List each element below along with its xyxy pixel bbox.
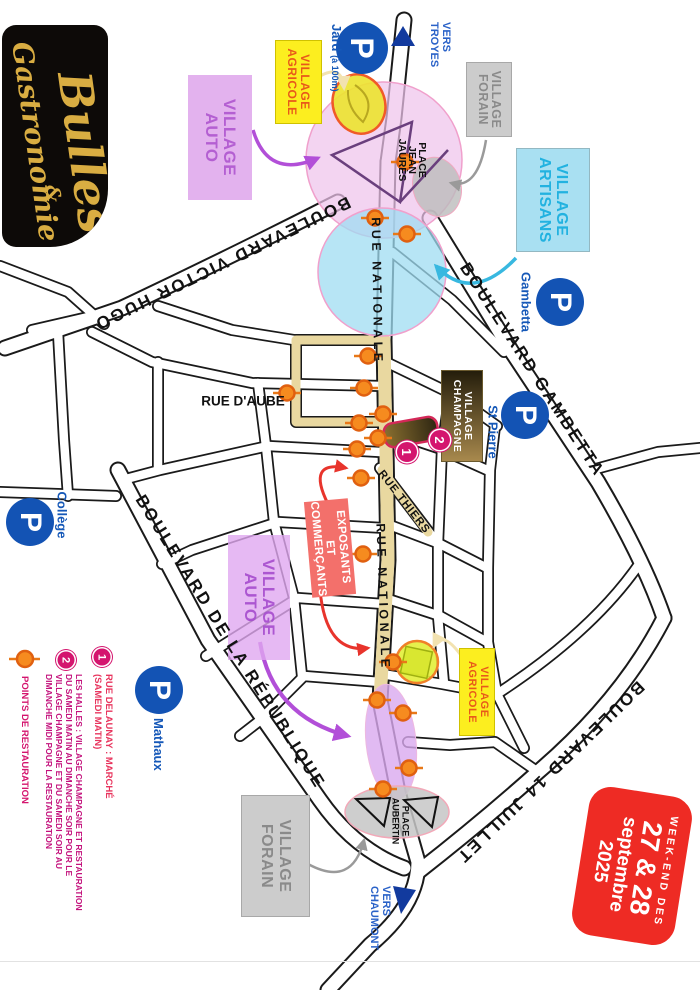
village-forain-box-north: VILLAGE FORAIN	[466, 62, 512, 137]
vers-chaumont-label: VERS CHAUMONT	[368, 886, 392, 950]
village-auto-word1: VILLAGE	[220, 99, 238, 176]
legend-item2: LES HALLES : VILLAGE CHAMPAGNE ET RESTAU…	[44, 674, 84, 911]
restauration-point-icon	[347, 471, 375, 486]
parking-mathaux-icon: P	[135, 666, 183, 714]
place-aubertin-label: PLACE AUBERTIN	[391, 798, 410, 845]
village-auto-box-north: VILLAGE AUTO	[188, 75, 252, 200]
village-agricole-box-south: VILLAGE AGRICOLE	[459, 648, 495, 736]
village-forain-word2: FORAIN	[258, 824, 275, 888]
village-agricole-word2: AGRICOLE	[286, 48, 299, 115]
village-forain-box-south: VILLAGE FORAIN	[241, 795, 310, 917]
marker-1-rue-delaunay: 1	[397, 442, 417, 462]
event-map-poster: Bulles & Gastronomie VILLAGE AUTO VILLAG…	[0, 0, 700, 990]
parking-college-icon: P	[6, 498, 54, 546]
village-champagne-word1: VILLAGE	[462, 391, 473, 440]
village-auto-word2: AUTO	[202, 113, 220, 163]
rue-daube-label: RUE D'AUBE	[201, 394, 284, 409]
marker-2-les-halles: 2	[430, 430, 450, 450]
village-artisans-box: VILLAGE ARTISANS	[516, 148, 590, 252]
map-stage: Bulles & Gastronomie VILLAGE AUTO VILLAG…	[0, 0, 700, 990]
village-forain-word2: FORAIN	[476, 74, 490, 125]
village-forain-word1: VILLAGE	[489, 71, 503, 129]
event-logo: Bulles & Gastronomie	[2, 25, 108, 247]
village-agricole-word2: AGRICOLE	[465, 661, 477, 723]
village-agricole-box-north: VILLAGE AGRICOLE	[275, 40, 322, 124]
parking-st-pierre-icon: P	[501, 391, 549, 439]
village-artisans-word2: ARTISANS	[536, 157, 553, 243]
parking-st-pierre-label: St Pierre	[486, 405, 501, 458]
restauration-point-icon	[349, 547, 377, 562]
parking-gambetta-label: Gambetta	[519, 272, 534, 332]
legend-marker-1-icon: 1	[94, 649, 111, 666]
parking-gambetta-icon: P	[536, 278, 584, 326]
village-champagne-box: VILLAGE CHAMPAGNE	[441, 370, 483, 462]
parking-college-label: Collège	[55, 492, 70, 539]
village-agricole-word1: VILLAGE	[477, 666, 489, 717]
legend-item1: RUE DELAUNAY : MARCHÉ (SAMEDI MATIN)	[92, 674, 114, 799]
village-forain-word1: VILLAGE	[276, 820, 293, 893]
parking-jard-label: Jard (à 100m)	[329, 24, 344, 92]
poster-edge-line	[0, 961, 700, 962]
vers-troyes-label: VERS TROYES	[428, 22, 452, 67]
place-jean-jaures-label: PLACE JEAN JAURÈS	[397, 139, 427, 182]
village-auto-word1: VILLAGE	[259, 559, 277, 636]
village-agricole-word1: VILLAGE	[299, 54, 312, 110]
exposants-box: EXPOSANTS ET COMMERÇANTS	[304, 498, 356, 597]
village-champagne-word2: CHAMPAGNE	[451, 380, 462, 453]
legend-item3: POINTS DE RESTAURATION	[19, 676, 30, 804]
restauration-legend-icon	[9, 651, 40, 667]
legend-marker-2-icon: 2	[58, 652, 75, 669]
village-artisans-word1: VILLAGE	[553, 164, 570, 237]
rue-nationale-label-west: RUE NATIONALE	[369, 217, 386, 365]
village-auto-word2: AUTO	[241, 573, 259, 623]
parking-mathaux-label: Mathaux	[151, 718, 166, 771]
